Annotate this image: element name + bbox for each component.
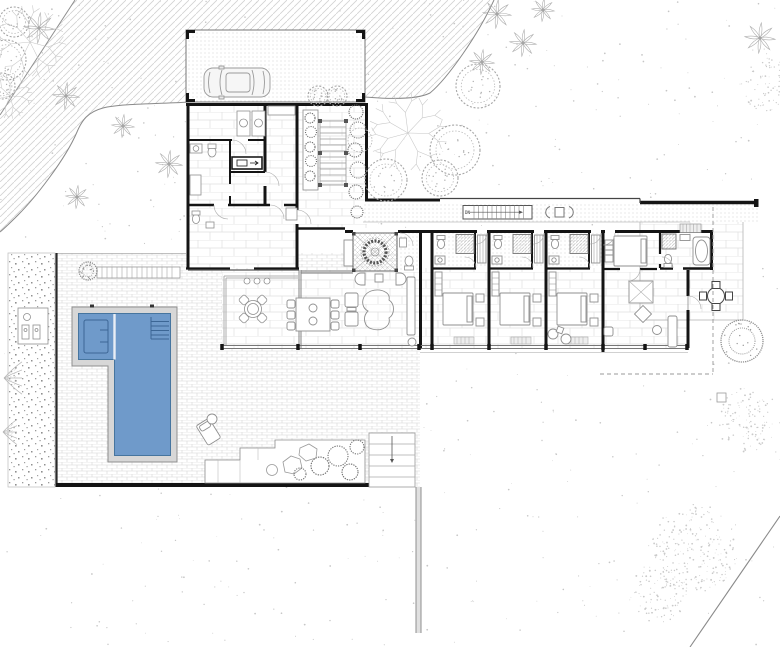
dining-set <box>287 298 339 331</box>
skimmer <box>90 305 94 308</box>
garden-path <box>416 487 421 633</box>
site-plan-drawing: DN <box>0 0 780 647</box>
toilet <box>437 239 444 248</box>
deck-bench <box>97 267 180 278</box>
bathtub <box>696 240 708 262</box>
shower <box>662 234 676 249</box>
carport <box>186 30 365 102</box>
toilet <box>494 239 501 248</box>
side-table <box>207 414 217 424</box>
stair-label: DN <box>465 210 471 215</box>
shower <box>513 235 531 254</box>
toilet <box>551 239 558 248</box>
skimmer <box>150 305 154 308</box>
foyer-bench <box>344 240 353 266</box>
entry-stair: DN <box>463 206 532 220</box>
car <box>204 66 270 99</box>
foyer-planter <box>352 232 398 272</box>
gravel-yard <box>8 253 55 487</box>
kitchen-island <box>232 157 262 169</box>
stepping-stone <box>717 393 726 402</box>
floor-plan-canvas: DN <box>0 0 780 647</box>
window-bench <box>668 316 677 347</box>
shower <box>570 235 588 254</box>
shower <box>456 235 474 254</box>
garden-steps <box>369 433 415 487</box>
outdoor-shower <box>18 308 48 344</box>
